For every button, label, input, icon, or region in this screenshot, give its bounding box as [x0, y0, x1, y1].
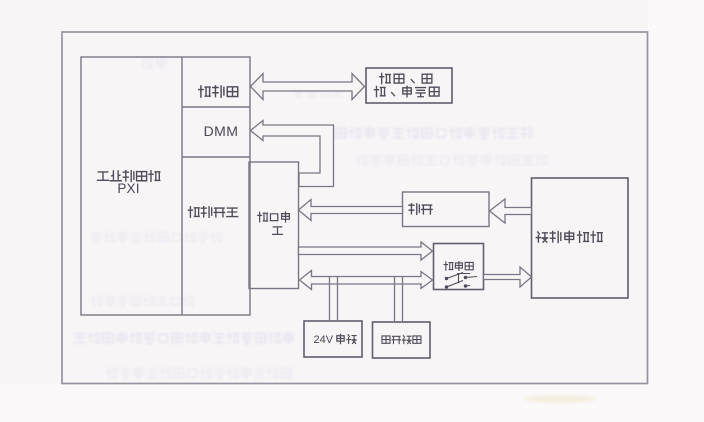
- svg-text:24V: 24V: [314, 334, 334, 346]
- svg-text:PXI: PXI: [117, 181, 139, 196]
- svg-text:DMM: DMM: [204, 123, 239, 139]
